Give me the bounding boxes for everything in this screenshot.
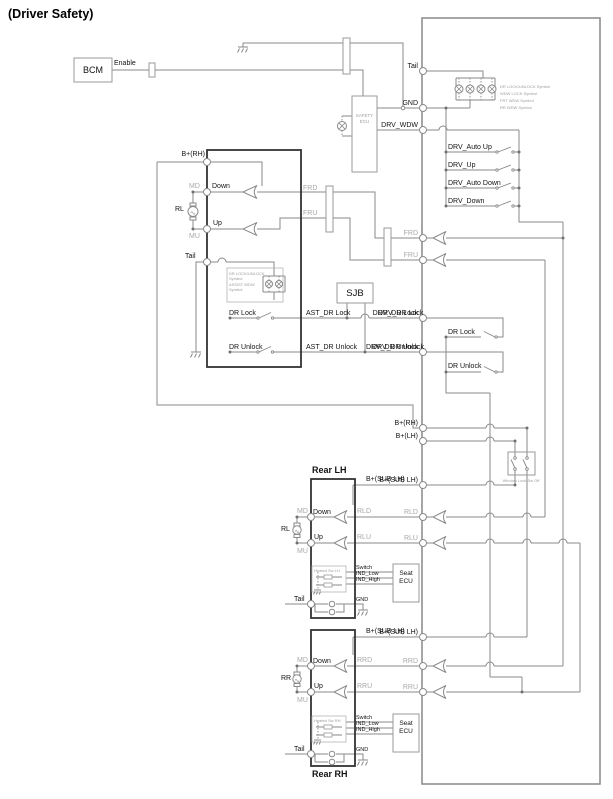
rear-rh-mu-label: MU xyxy=(297,697,308,705)
connector xyxy=(326,186,333,232)
drv-note-4: Symbol xyxy=(229,287,242,292)
drv-down-port-label: Down xyxy=(212,183,230,191)
drv-md-label: MD xyxy=(189,183,200,191)
rear-rh-md-label: MD xyxy=(297,657,308,665)
rear-lh-title: Rear LH xyxy=(312,466,347,474)
rear-lh-motor-icon xyxy=(293,526,301,534)
rear-rh-gnd-label: GND xyxy=(356,747,368,753)
lamp-leads xyxy=(269,78,492,740)
rear-lh-mu-label: MU xyxy=(297,548,308,556)
drv-dr-unlock-label: DR Unlock xyxy=(229,344,262,352)
window-lock-note: Window Lock Sw Off xyxy=(500,478,542,483)
rear-lh-down-label: Down xyxy=(313,509,331,517)
bus-b-lh-label: B+(LH) xyxy=(358,433,418,441)
window-lock-sw-box xyxy=(508,452,535,475)
drv-b-rh-label: B+(RH) xyxy=(150,151,205,159)
bus-tail-label: Tail xyxy=(358,63,418,71)
drv-dr-lock-wire-label: DRV_DR Lock xyxy=(378,310,423,318)
bus-gnd-label: GND xyxy=(358,100,418,108)
sjb-label: SJB xyxy=(337,283,373,303)
rear-lh-seat-ecu-label: Seat ECU xyxy=(394,570,418,585)
rear-lh-rld-wire-label: RLD xyxy=(357,508,371,516)
drv-up-label: DRV_Up xyxy=(448,162,476,170)
boxes xyxy=(74,18,600,784)
lamp-note-1: DR LOCK/UNLOCK Symbol xyxy=(500,84,550,89)
connector xyxy=(343,38,350,74)
drv-motor-label: RL xyxy=(175,206,184,214)
rear-rh-down-label: Down xyxy=(313,658,331,666)
rear-lh-up-label: Up xyxy=(314,534,323,542)
drv-fru-wire-label: FRU xyxy=(303,210,317,218)
wiring-diagram: (Driver Safety) BCM Enable SAFETY ECU SJ… xyxy=(0,0,613,799)
rear-rh-rru-wire-label: RRU xyxy=(357,683,372,691)
ast-dr-unlock-label: AST_DR Unlock xyxy=(306,344,357,352)
rear-rh-title: Rear RH xyxy=(312,770,348,778)
drv-frd-wire-label: FRD xyxy=(303,185,317,193)
main-ecu-box xyxy=(422,18,600,784)
drv-up-port-label: Up xyxy=(213,220,222,228)
enable-label: Enable xyxy=(114,60,136,68)
rear-rh-tail-label: Tail xyxy=(294,746,305,754)
front-motor-icon xyxy=(188,207,198,217)
drv-dr-unlock-wire-label: DRV_DR Unlock xyxy=(372,344,424,352)
drv-tail-label: Tail xyxy=(185,253,196,261)
rear-rh-heated-note: Heated Sw RH xyxy=(314,718,340,723)
page-title: (Driver Safety) xyxy=(8,7,93,21)
ast-dr-lock-label: AST_DR Lock xyxy=(306,310,350,318)
lamp-note-3: FRT WDW Symbol xyxy=(500,98,534,103)
dr-lock-switch-label: DR Lock xyxy=(448,329,475,337)
rear-rh-motor-icon xyxy=(293,675,301,683)
rear-lh-tail-label: Tail xyxy=(294,596,305,604)
rear-rh-up-label: Up xyxy=(314,683,323,691)
rear-rh-box xyxy=(311,630,355,766)
connector xyxy=(149,63,155,77)
lamp-note-2: WDW LOCK Symbol xyxy=(500,91,537,96)
bus-b-rh-label: B+(RH) xyxy=(358,420,418,428)
drv-auto-up-label: DRV_Auto Up xyxy=(448,144,492,152)
drv-down-label: DRV_Down xyxy=(448,198,484,206)
bus-drv-wdw-label: DRV_WDW xyxy=(358,122,418,130)
bus-frd-label: FRD xyxy=(358,230,418,238)
rear-lh-gnd-label: GND xyxy=(356,597,368,603)
ground-symbols xyxy=(191,47,369,766)
bcm-label: BCM xyxy=(74,58,112,82)
rear-lh-md-label: MD xyxy=(297,508,308,516)
rear-rh-ind-high-label: IND_High xyxy=(356,727,380,733)
rear-lh-b-sub-label: B+(SUB LH) xyxy=(366,476,405,484)
drv-auto-down-label: DRV_Auto Down xyxy=(448,180,501,188)
rear-lh-heated-note: Heated Sw LH xyxy=(314,568,340,573)
rear-rh-motor-label: RR xyxy=(281,675,291,683)
drv-note-2: Symbol xyxy=(229,276,242,281)
drv-mu-label: MU xyxy=(189,233,200,241)
schematic-canvas xyxy=(0,0,613,799)
drv-dr-lock-label: DR Lock xyxy=(229,310,256,318)
trunk-verticals xyxy=(347,108,580,692)
rear-rh-b-sub-label: B+(SUB LH) xyxy=(366,628,405,636)
lamp-note-4: RR WDW Symbol xyxy=(500,105,532,110)
rear-lh-rlu-wire-label: RLU xyxy=(357,534,371,542)
rear-rh-rrd-wire-label: RRD xyxy=(357,657,372,665)
rear-rh-seat-ecu-label: Seat ECU xyxy=(394,720,418,735)
rear-lh-ind-high-label: IND_High xyxy=(356,577,380,583)
rear-lh-box xyxy=(311,479,355,618)
rear-lh-motor-label: RL xyxy=(281,526,290,534)
bus-fru-label: FRU xyxy=(358,252,418,260)
dr-unlock-switch-label: DR Unlock xyxy=(448,363,481,371)
